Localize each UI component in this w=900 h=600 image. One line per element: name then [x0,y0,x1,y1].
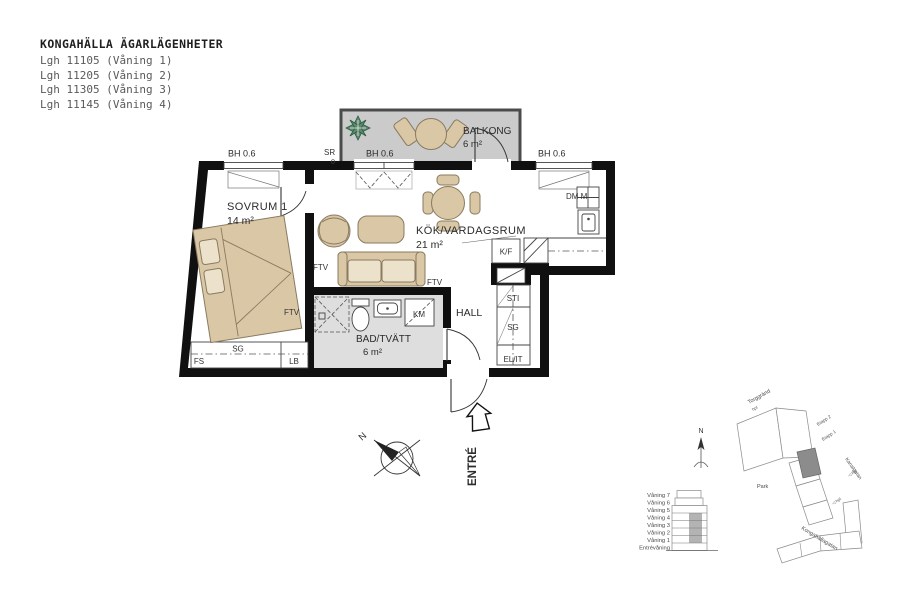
window-height-label: BH 0.6 [366,149,394,159]
hall-closets: STI SG EL/IT [497,285,530,365]
elevation-top [677,491,701,499]
floorplan-page: KONGAHÄLLA ÄGARLÄGENHETER Lgh 11105 (Vån… [0,0,900,600]
hall-label: HALL [456,307,482,319]
site-plan: N Våning 7 Våning 6 Våning 5 Våning 4 Vå… [639,388,863,563]
dining-table [432,187,465,220]
sink-tap [587,218,590,221]
bed [193,216,302,343]
street-torggrand: Torggränd [747,388,772,405]
elevation-mid [675,498,703,506]
sovrum-area: 14 m² [227,215,254,227]
armchair [318,215,350,247]
coffee-table [358,216,404,243]
hpl-marker: ◁ hpl [831,496,842,506]
wardrobe-label-sg: SG [232,345,244,354]
floor-label: Våning 5 [647,507,670,514]
park-label: Park [757,484,769,490]
closet-label-sg: SG [507,323,519,332]
wardrobe-label-fs: FS [194,357,204,366]
sink-tap [386,307,389,310]
floor-label: Våning 4 [647,515,671,522]
window-height-label: BH 0.6 [538,149,566,159]
etapp1-label: Etapp 1 [821,429,837,442]
hpl-label: hpl [751,405,758,412]
sofa-cushion [348,260,381,282]
window-height-label: BH 0.6 [228,149,256,159]
pillow [199,238,221,265]
ftv-label: FTV [427,278,443,287]
page-title: KONGAHÄLLA ÄGARLÄGENHETER [40,37,223,51]
dining-chair [437,175,459,185]
entry-group: ENTRÉ [465,401,493,486]
site-map: Torggränd hpl Etapp 2 Etapp 1 Kanalgatan… [737,388,863,563]
sr-label: SR [324,148,335,157]
window-bedroom [224,163,283,169]
balcony-area: 6 m² [463,139,482,150]
closet-label-elit: EL/IT [503,355,522,364]
window-kitchen [536,163,592,169]
floor-label: Våning 6 [647,500,670,507]
compass-needle [374,440,399,461]
floor-label: Våning 7 [647,492,670,499]
sofa-cushion [382,260,415,282]
pillow [204,268,226,295]
toilet-bowl [352,307,369,331]
floor-label: Våning 3 [647,522,670,529]
door-gap [447,364,489,379]
door-gap [472,159,511,172]
sovrum-label: SOVRUM 1 [227,201,288,213]
ftv-label: FTV [313,263,329,272]
bad-area: 6 m² [363,347,382,358]
wall-divider-stub [305,170,314,184]
ftv-label: FTV [284,308,300,317]
wall-bath-right [443,295,451,328]
bedroom-wardrobes: SG FS LB [191,342,308,368]
apartment-line: Lgh 11305 (Våning 3) [40,83,223,98]
north-compass-icon: N [357,430,420,476]
kok-area: 21 m² [416,239,443,251]
balcony-label: BALKONG [463,126,512,137]
compass-n-label: N [357,430,370,443]
wardrobe-label-lb: LB [289,357,299,366]
floor-label: Våning 2 [647,530,670,537]
apartment-line: Lgh 11205 (Våning 2) [40,69,223,84]
window-casement [228,172,279,187]
dm-label: DM M [566,192,588,201]
toilet-tank [352,299,369,306]
site-building [737,408,783,471]
closet-label-sti: STI [507,294,519,303]
bad-label: BAD/TVÄTT [356,333,411,345]
site-north-label: N [698,428,703,435]
sofa-armrest [416,252,425,286]
balcony-table [416,119,447,150]
dining-chair [470,192,480,214]
bath-door-swing [447,329,480,360]
sofa-armrest [338,252,347,286]
floor-label: Entrévåning [639,545,670,552]
header-block: KONGAHÄLLA ÄGARLÄGENHETER Lgh 11105 (Vån… [40,37,223,112]
window-sill [356,171,412,189]
floor-label: Våning 1 [647,537,670,544]
building-elevation: Våning 7 Våning 6 Våning 5 Våning 4 Våni… [639,491,718,552]
entre-label: ENTRÉ [466,447,479,486]
apartment-line: Lgh 11105 (Våning 1) [40,54,223,69]
window-casement [356,172,412,188]
wall-bath-top [305,287,451,295]
site-north-icon: N [694,428,708,468]
window-casement [539,172,589,188]
apartment-line: Lgh 11145 (Våning 4) [40,98,223,113]
kok-label: KÖK/VARDAGSRUM [416,225,526,237]
etapp2-label: Etapp 2 [816,414,832,427]
kf-label: K/F [500,248,513,257]
washer-label: KM [413,310,425,319]
